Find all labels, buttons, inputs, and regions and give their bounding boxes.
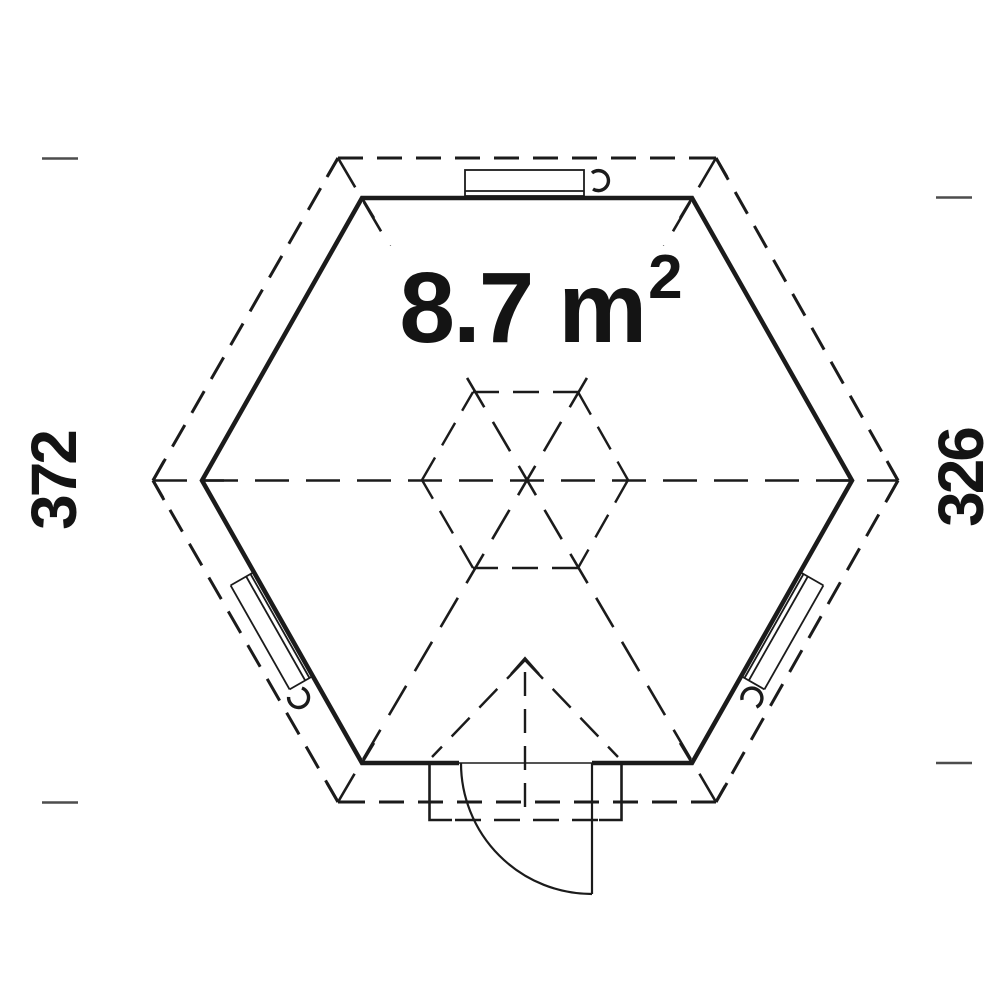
window-left-opening-hook-icon xyxy=(287,687,313,711)
door-swing-arc xyxy=(461,763,592,894)
floor-area-exponent: 2 xyxy=(648,247,680,309)
floor-area-label: 8.7 m 2 xyxy=(399,258,680,358)
floor-plan-canvas: 8.7 m 2 372 326 xyxy=(0,0,1000,1000)
window-left xyxy=(231,572,313,689)
window-top-opening-hook-icon xyxy=(592,171,608,191)
floor-area-value: 8.7 m xyxy=(399,258,645,358)
floor-plan-drawing xyxy=(0,0,1000,1000)
window-right xyxy=(741,572,823,689)
dimension-right-326: 326 xyxy=(929,429,993,527)
dimension-left-372: 372 xyxy=(22,432,86,530)
window-top xyxy=(465,170,584,196)
